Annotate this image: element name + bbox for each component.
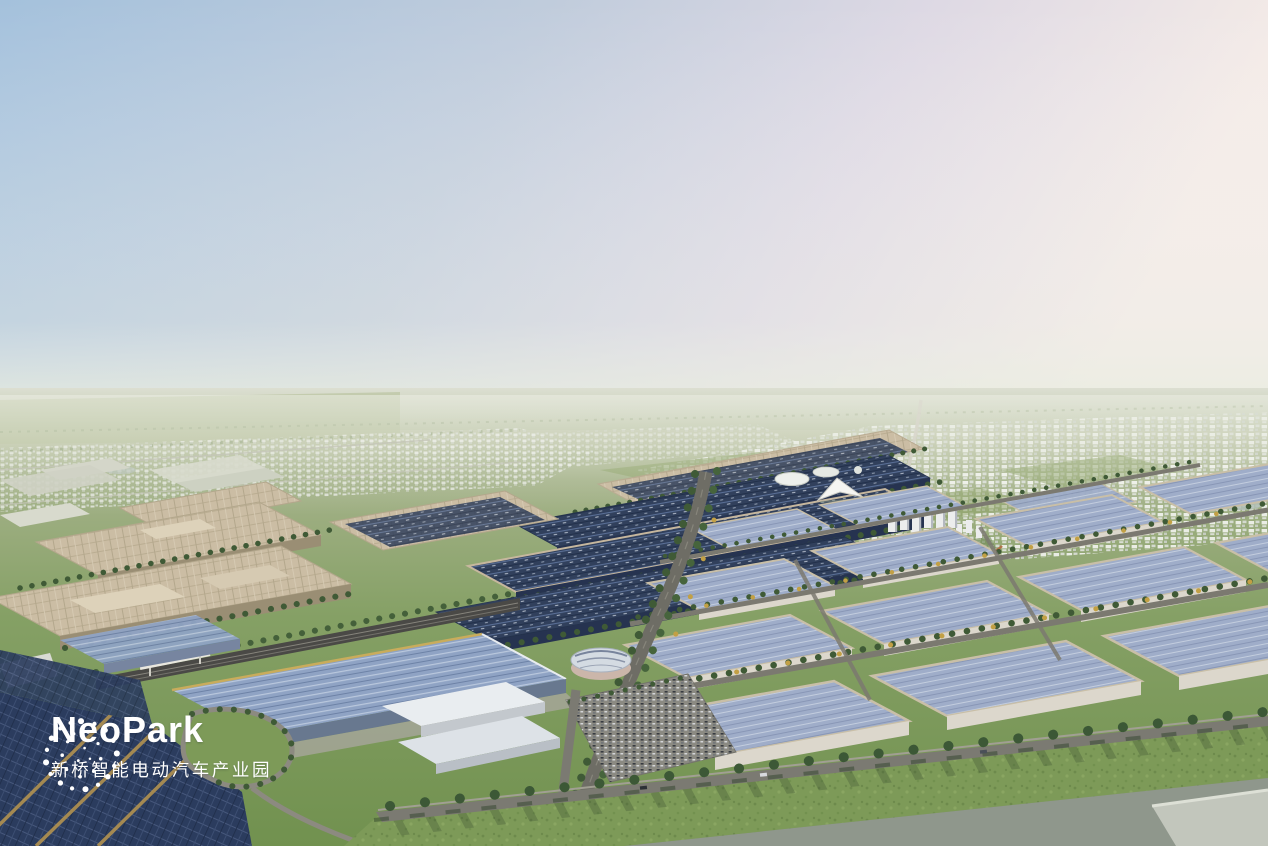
neopark-aerial-rendering: NeoPark 新桥智能电动汽车产业园: [0, 0, 1268, 846]
sky: [0, 0, 1268, 402]
dotted-sphere-logo-icon: [38, 714, 124, 800]
neopark-logo: NeoPark 新桥智能电动汽车产业园: [38, 712, 272, 782]
